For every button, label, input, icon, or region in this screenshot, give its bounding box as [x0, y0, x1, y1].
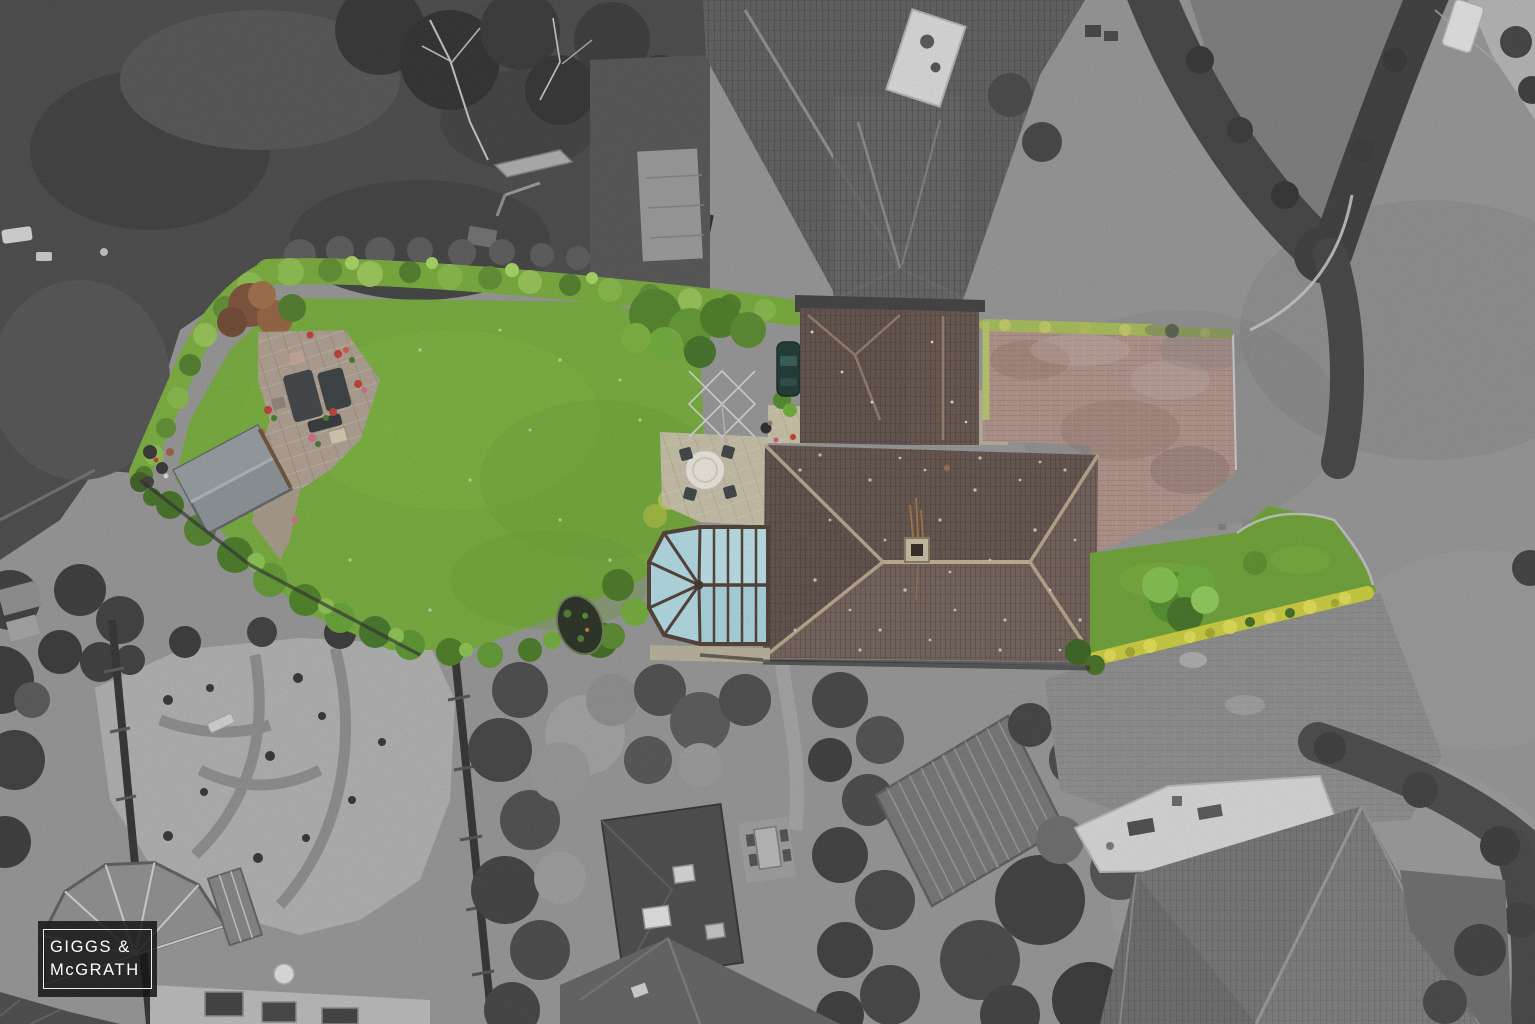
agency-name-line2: McGRATH	[50, 960, 140, 981]
agency-watermark-border: GIGGS & McGRATH	[43, 929, 152, 989]
photo-grain	[0, 0, 1535, 1024]
agency-name-line1: GIGGS &	[50, 937, 131, 958]
aerial-photo-stage: GIGGS & McGRATH	[0, 0, 1535, 1024]
aerial-photo	[0, 0, 1535, 1024]
agency-watermark: GIGGS & McGRATH	[38, 921, 157, 997]
